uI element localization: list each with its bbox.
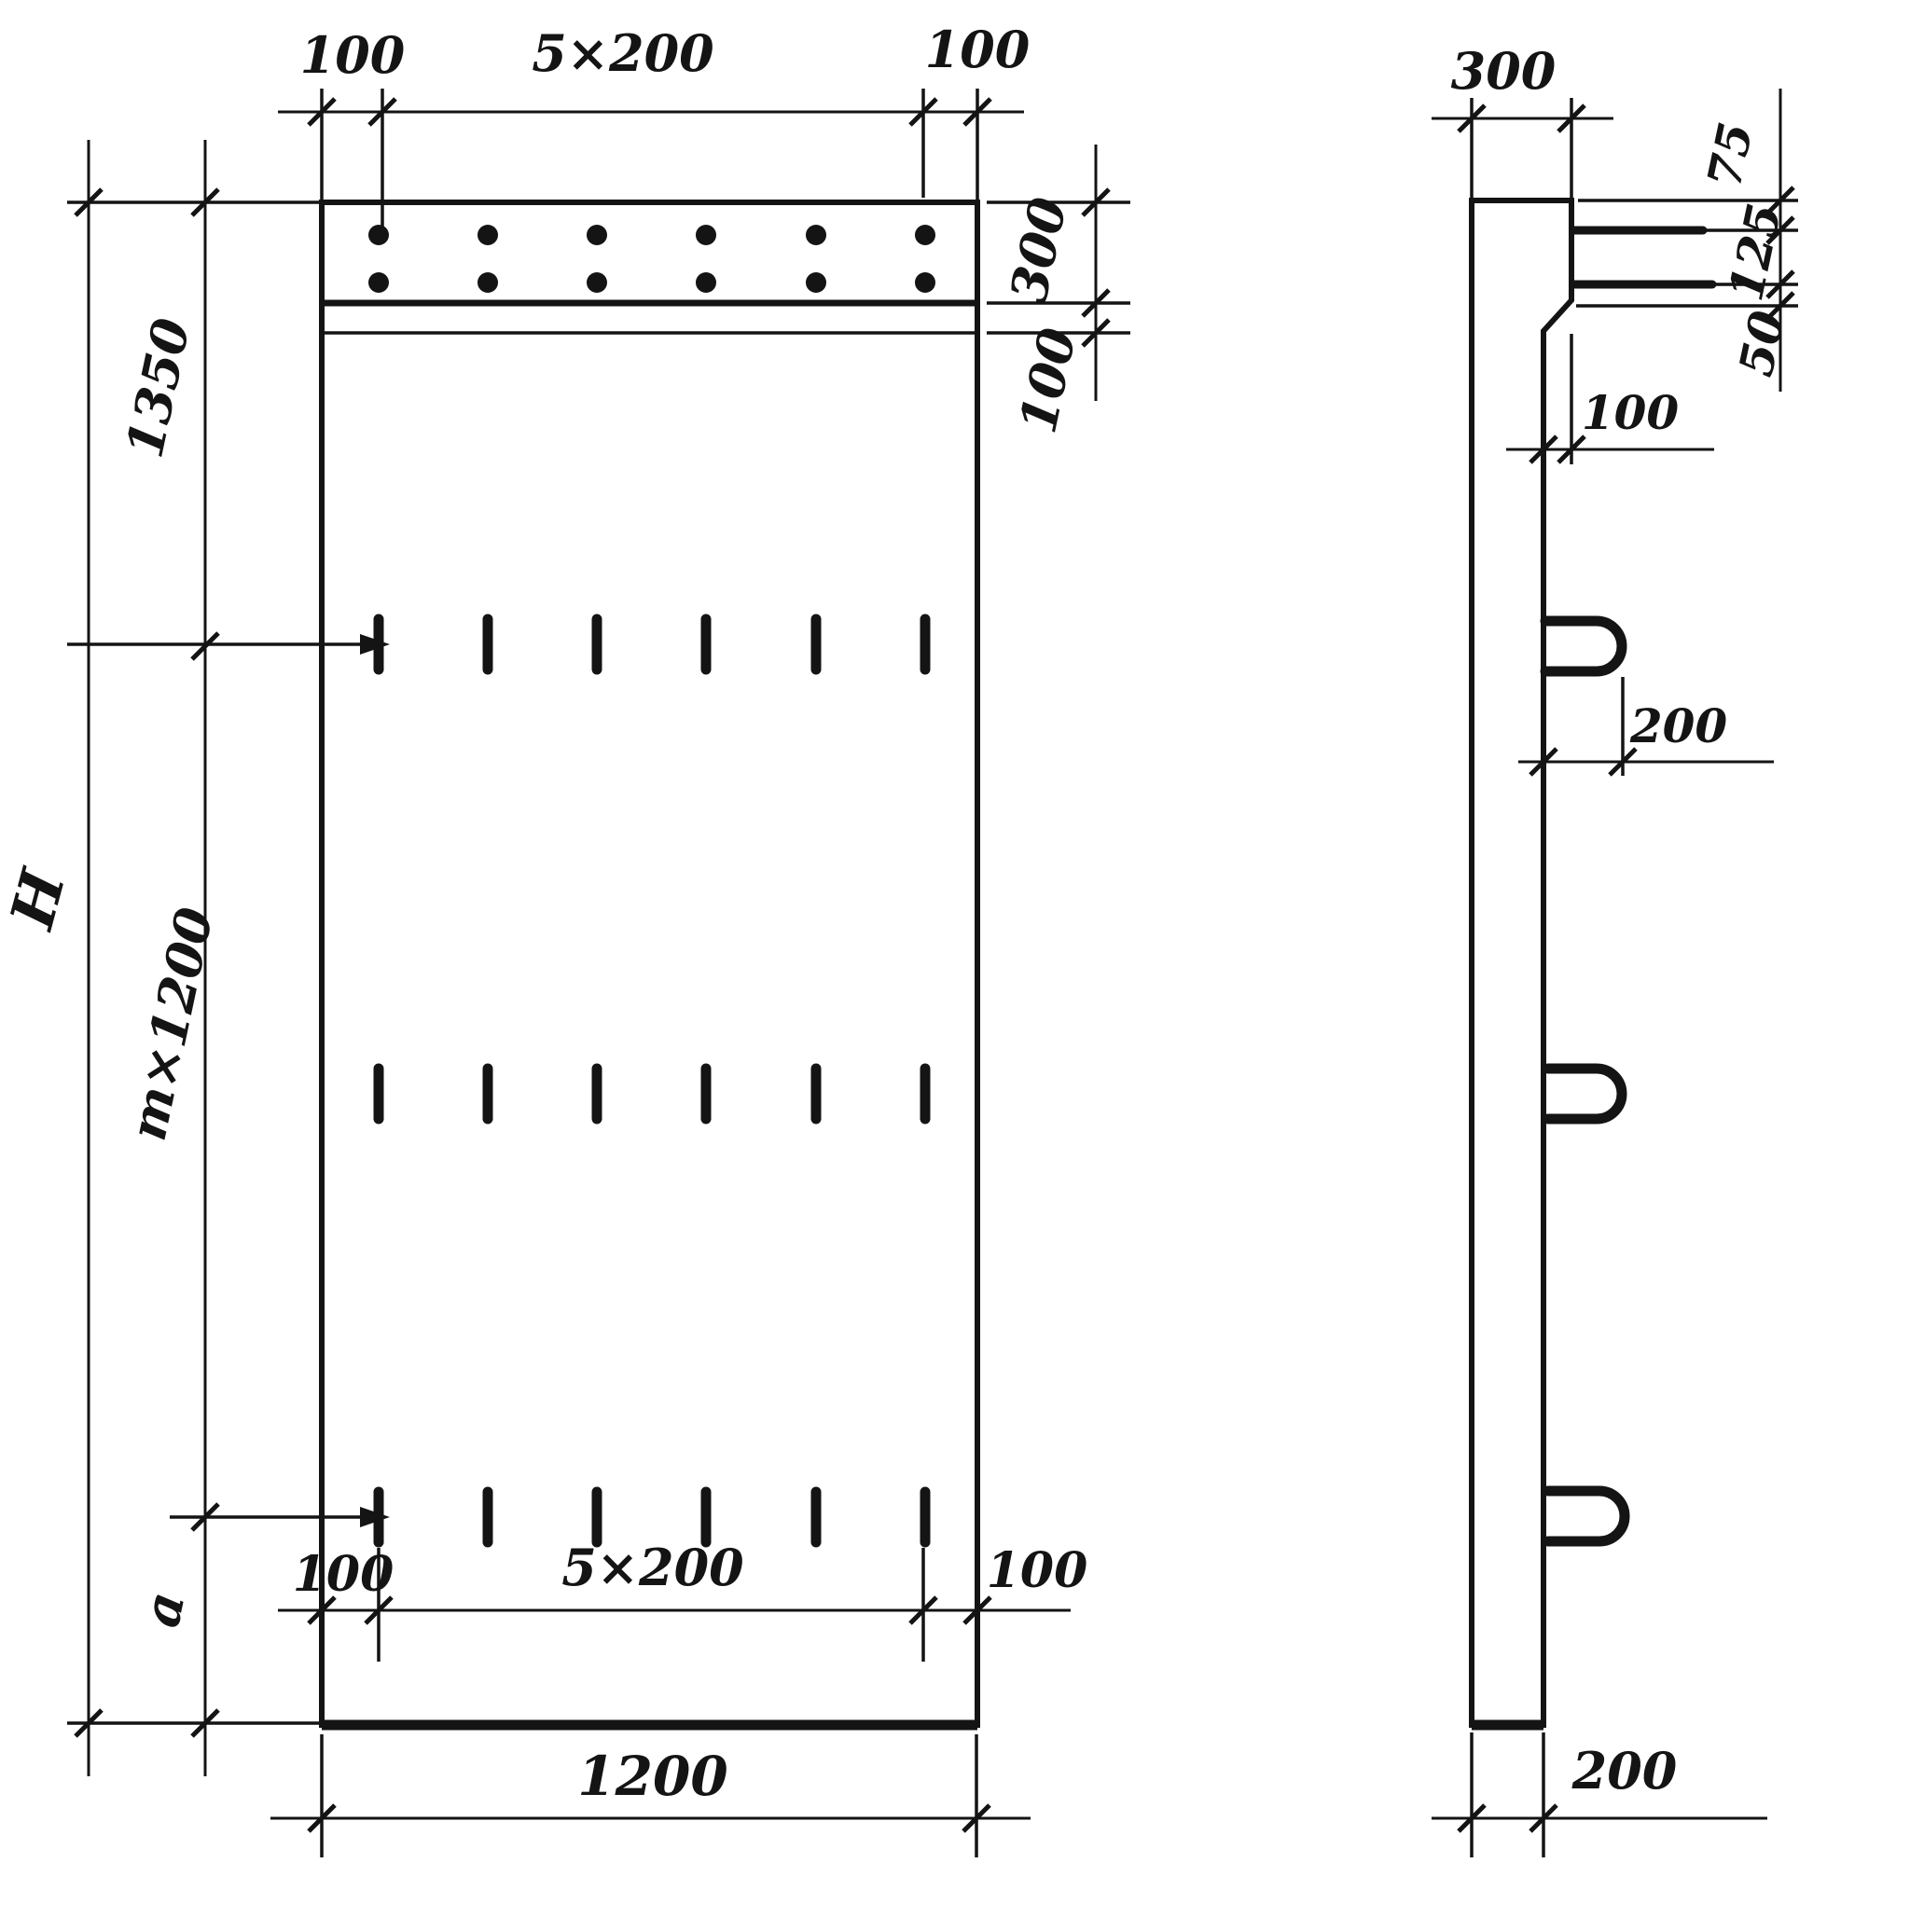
dowel-dash-row-middle [379,1069,925,1119]
side-bottom-dimension: 200 [1432,1732,1767,1857]
dim-side-top-thickness: 300 [1451,41,1557,101]
side-bar-dimensions: 75 125 50 [1696,89,1795,392]
lifting-loops [1545,621,1625,1541]
dim-band-gap: 100 [1007,323,1087,438]
front-bottom-inner-dimension: 100 5×200 100 [278,1538,1087,1662]
side-loop-dimension: 200 [1518,677,1774,776]
side-top-dimension: 300 [1432,41,1613,199]
side-step-dimension: 100 [1506,334,1714,464]
panel-technical-drawing: 100 5×200 100 300 100 [0,0,1910,1932]
dowel-dash-row-top [379,619,925,669]
dim-overall-height: H [0,861,80,937]
front-right-dimension: 300 100 [987,145,1130,438]
lifting-loop-top [1545,621,1622,671]
lifting-loop-middle [1548,1069,1622,1119]
front-width-dimension: 1200 [270,1734,1031,1857]
front-left-dimensions: 1350 H m×1200 a [0,140,390,1776]
dowel-dash-row-bottom [379,1492,925,1542]
dim-middle-segment: m×1200 [118,903,225,1145]
dim-top-segment: 1350 [114,313,201,462]
dim-front-bottom-right: 100 [987,1542,1088,1599]
front-view: 100 5×200 100 300 100 [0,20,1130,1857]
dim-side-bottom-thickness: 200 [1571,1741,1678,1801]
anchor-dots [368,225,935,293]
panel-outline [322,202,977,1725]
dim-band-height: 300 [998,192,1078,308]
dim-front-bottom-left: 100 [293,1546,394,1603]
dim-front-top-left: 100 [300,25,406,85]
dim-top-to-bar: 75 [1696,117,1764,192]
dim-front-bottom-spacing: 5×200 [561,1538,744,1597]
drawing-sheet: 100 5×200 100 300 100 [0,0,1910,1932]
side-outline [1472,200,1571,1725]
dim-bar-to-edge: 50 [1728,306,1795,381]
dim-step-offset: 100 [1582,385,1680,440]
dim-front-top-spacing: 5×200 [532,23,714,83]
dim-bottom-segment: a [130,1586,197,1632]
lifting-loop-bottom [1548,1491,1625,1541]
side-view: 300 75 125 50 100 200 [1432,41,1798,1857]
dim-loop-protrusion: 200 [1629,698,1728,753]
dim-overall-width: 1200 [577,1745,727,1808]
dim-front-top-right: 100 [925,20,1031,79]
